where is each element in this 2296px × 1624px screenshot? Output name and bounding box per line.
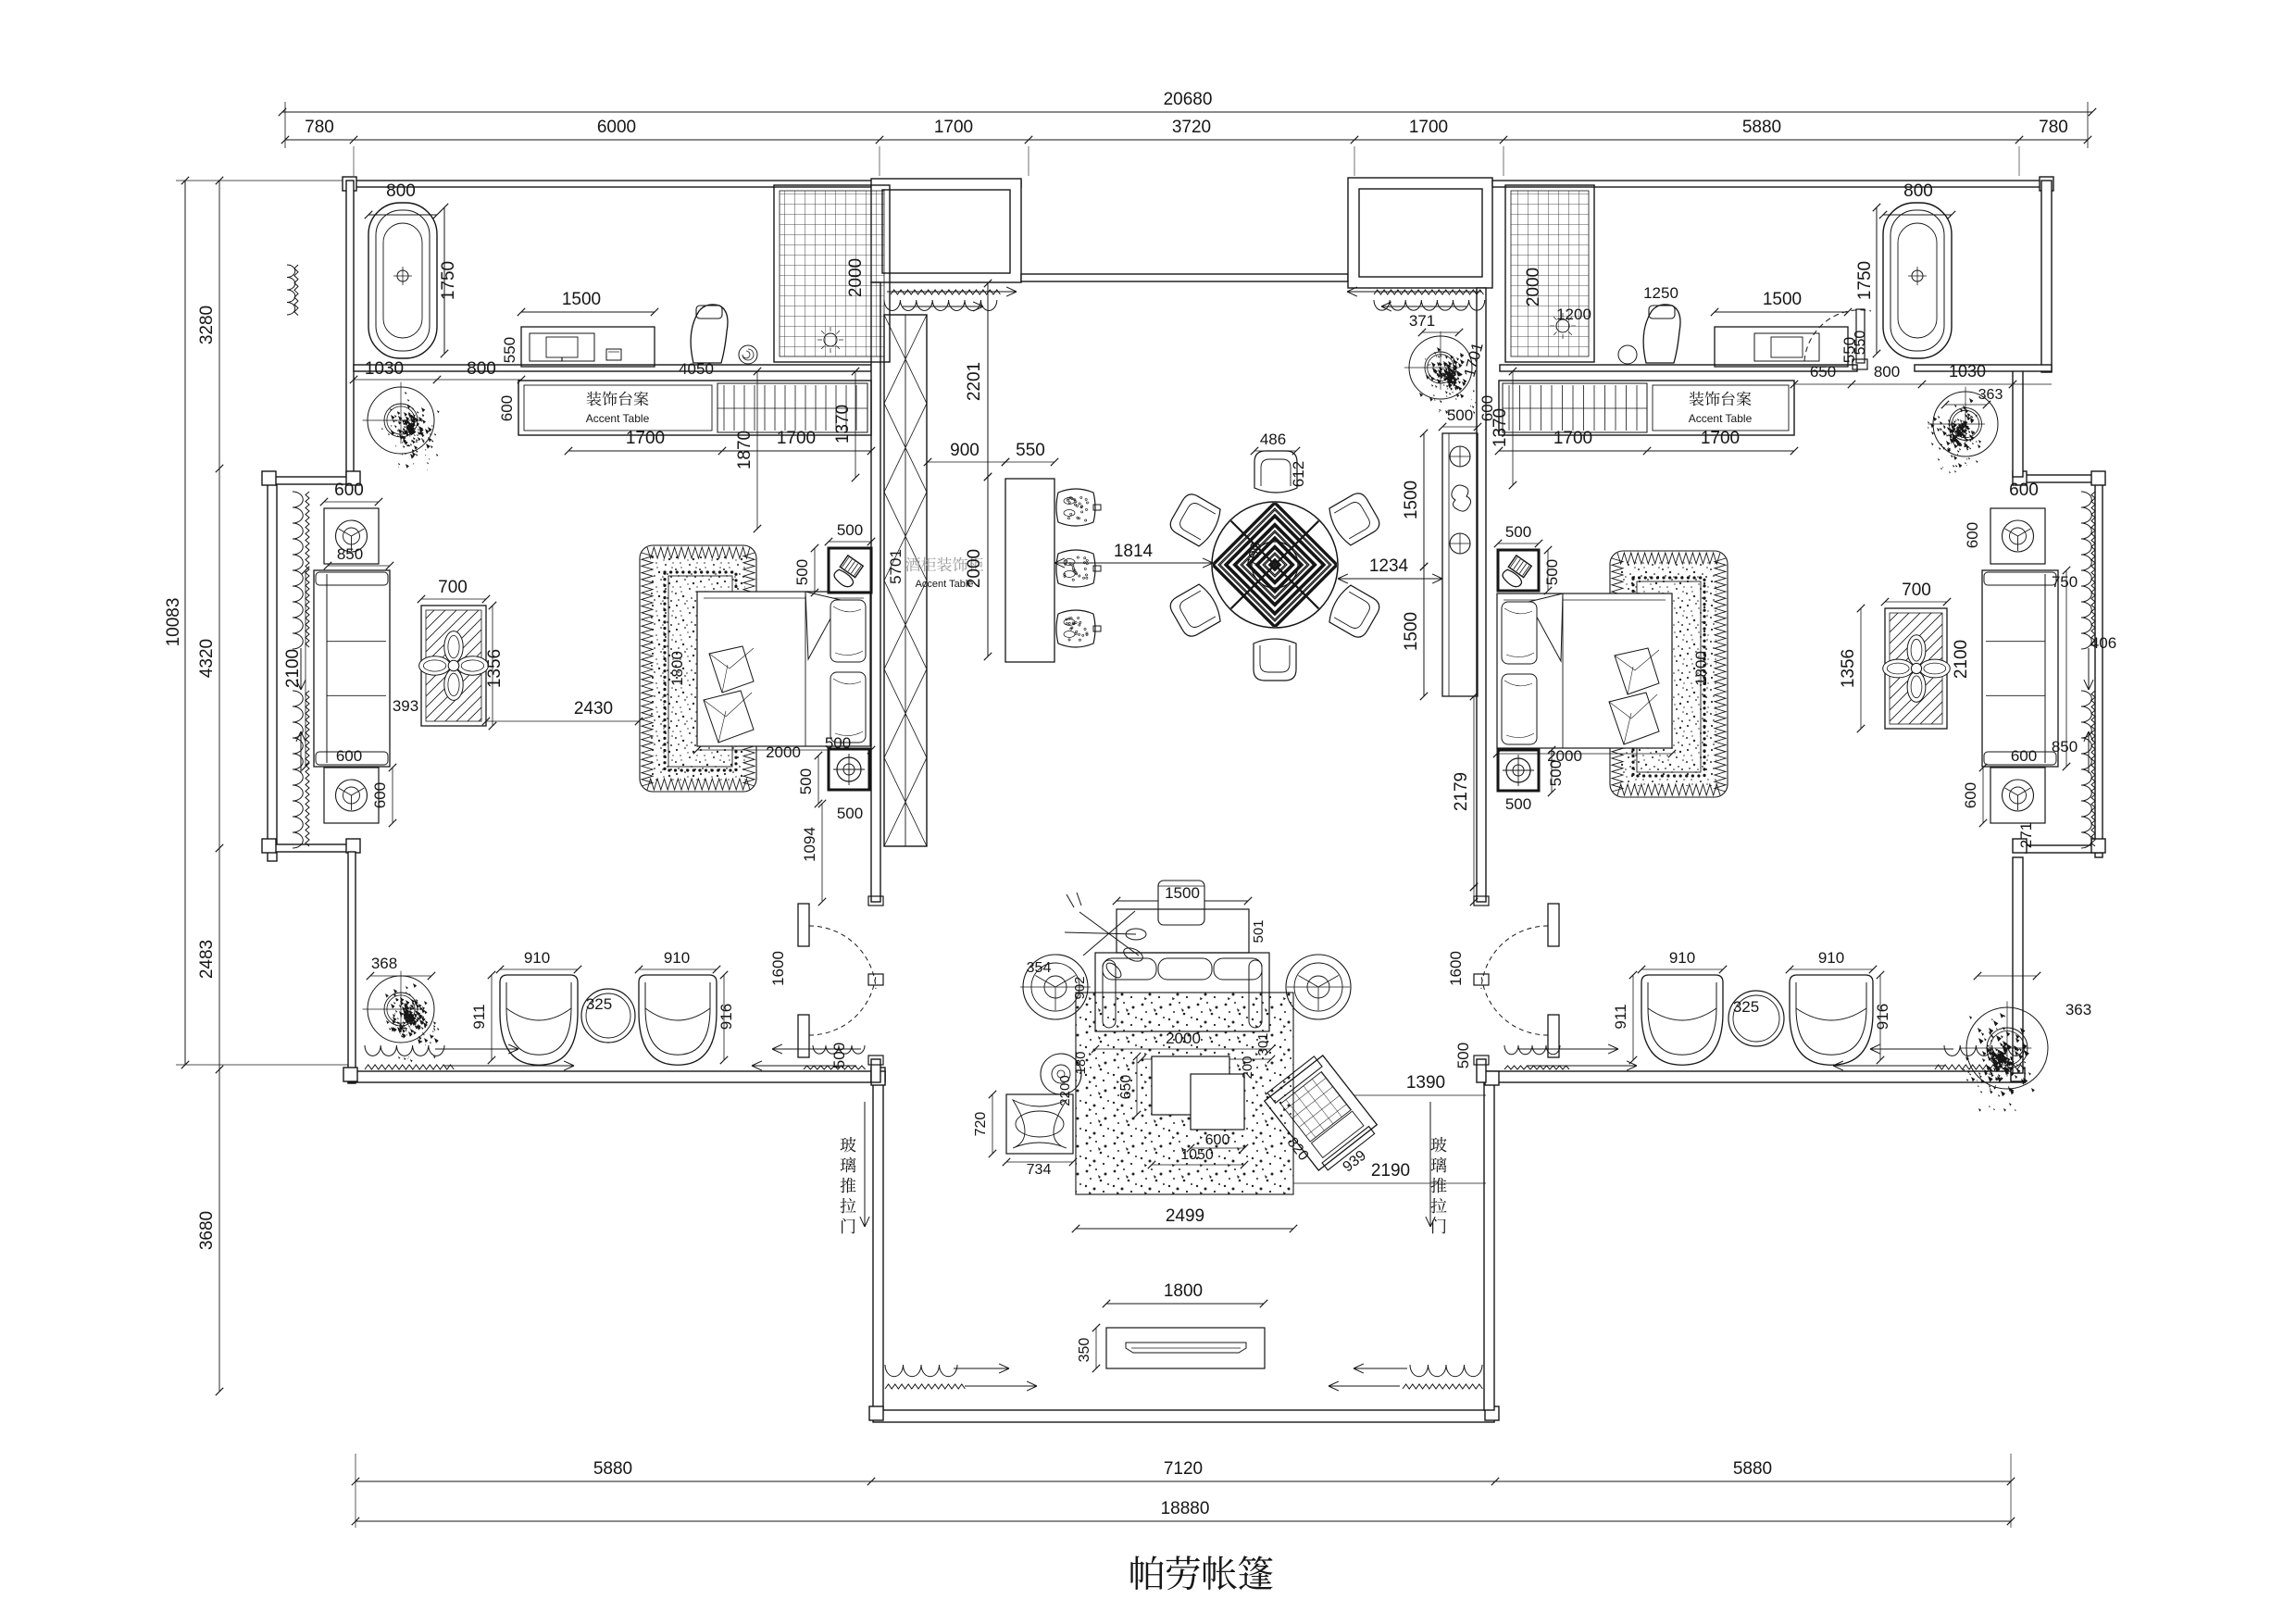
svg-text:5701: 5701 <box>887 549 905 584</box>
svg-text:600: 600 <box>2011 747 2037 765</box>
svg-text:500: 500 <box>1454 1043 1472 1068</box>
svg-text:500: 500 <box>837 521 863 539</box>
svg-text:780: 780 <box>2039 118 2068 137</box>
svg-text:2430: 2430 <box>574 699 613 718</box>
svg-text:1370: 1370 <box>1491 408 1510 447</box>
svg-text:734: 734 <box>1027 1162 1052 1178</box>
svg-text:2000: 2000 <box>846 258 866 297</box>
svg-text:2499: 2499 <box>1166 1206 1204 1226</box>
svg-text:500: 500 <box>825 734 851 752</box>
svg-text:1700: 1700 <box>1701 429 1740 448</box>
svg-text:650: 650 <box>1118 1075 1134 1100</box>
svg-text:1800: 1800 <box>668 651 686 686</box>
svg-text:1356: 1356 <box>1839 649 1858 688</box>
svg-text:800: 800 <box>1874 363 1900 381</box>
svg-text:750: 750 <box>2052 573 2078 591</box>
svg-text:550: 550 <box>1016 441 1045 460</box>
svg-text:2483: 2483 <box>197 940 217 979</box>
svg-text:1700: 1700 <box>934 118 973 137</box>
svg-text:1030: 1030 <box>1949 362 1986 381</box>
svg-text:600: 600 <box>1962 782 1979 808</box>
svg-text:500: 500 <box>1547 760 1565 786</box>
svg-text:3680: 3680 <box>197 1211 217 1250</box>
svg-text:1250: 1250 <box>1643 284 1678 302</box>
svg-text:500: 500 <box>1505 523 1531 541</box>
svg-text:500: 500 <box>1543 559 1561 585</box>
svg-text:600: 600 <box>336 747 362 765</box>
svg-text:2000: 2000 <box>1166 1030 1201 1047</box>
svg-text:2100: 2100 <box>283 649 303 688</box>
svg-text:600: 600 <box>334 481 364 500</box>
svg-text:7120: 7120 <box>1164 1459 1203 1479</box>
svg-text:1500: 1500 <box>1402 481 1421 519</box>
svg-text:1030: 1030 <box>365 359 404 379</box>
svg-text:700: 700 <box>438 578 468 597</box>
svg-text:354: 354 <box>1027 960 1052 976</box>
svg-text:500: 500 <box>1505 795 1531 813</box>
svg-text:1750: 1750 <box>439 261 458 300</box>
svg-text:1050: 1050 <box>1180 1147 1214 1163</box>
svg-text:500: 500 <box>1447 406 1473 424</box>
svg-text:20680: 20680 <box>1164 90 1213 109</box>
svg-text:1500: 1500 <box>1402 612 1421 651</box>
svg-text:18880: 18880 <box>1161 1499 1210 1518</box>
svg-text:916: 916 <box>1874 1004 1891 1030</box>
svg-text:1700: 1700 <box>777 429 816 448</box>
svg-text:501: 501 <box>1251 919 1267 943</box>
svg-text:2100: 2100 <box>1952 640 1971 679</box>
svg-text:10083: 10083 <box>164 598 183 647</box>
svg-text:600: 600 <box>498 395 516 421</box>
svg-text:900: 900 <box>950 441 980 460</box>
svg-text:780: 780 <box>305 118 334 137</box>
svg-text:1390: 1390 <box>1406 1073 1445 1093</box>
svg-text:5880: 5880 <box>1733 1459 1772 1479</box>
svg-text:600: 600 <box>1964 522 1981 548</box>
svg-text:600: 600 <box>2009 481 2039 500</box>
svg-text:500: 500 <box>793 559 811 585</box>
svg-text:1234: 1234 <box>1369 556 1409 576</box>
svg-text:600: 600 <box>371 782 389 808</box>
svg-text:650: 650 <box>1810 363 1836 381</box>
svg-text:6000: 6000 <box>597 118 636 137</box>
svg-text:1500: 1500 <box>1165 884 1200 902</box>
svg-text:800: 800 <box>467 359 496 379</box>
svg-text:700: 700 <box>1902 581 1931 600</box>
svg-text:2179: 2179 <box>1452 772 1471 811</box>
svg-text:1700: 1700 <box>1409 118 1448 137</box>
svg-text:910: 910 <box>1669 949 1695 967</box>
svg-text:5880: 5880 <box>1742 118 1781 137</box>
svg-text:1500: 1500 <box>562 290 601 309</box>
svg-text:910: 910 <box>664 949 690 967</box>
svg-text:800: 800 <box>1903 181 1933 201</box>
svg-text:2201: 2201 <box>965 362 984 401</box>
svg-text:800: 800 <box>386 181 416 201</box>
svg-text:486: 486 <box>1260 431 1286 448</box>
svg-text:368: 368 <box>371 955 397 972</box>
svg-text:1870: 1870 <box>735 431 755 469</box>
svg-text:850: 850 <box>337 545 363 563</box>
svg-text:3280: 3280 <box>197 306 217 344</box>
svg-text:2000: 2000 <box>1524 268 1543 306</box>
svg-text:600: 600 <box>1205 1132 1230 1148</box>
svg-text:301: 301 <box>1255 1032 1271 1056</box>
svg-text:200: 200 <box>1240 1056 1255 1079</box>
svg-text:902: 902 <box>1072 976 1088 999</box>
svg-text:1800: 1800 <box>1692 651 1710 686</box>
svg-text:1814: 1814 <box>1114 542 1154 561</box>
svg-text:4050: 4050 <box>679 360 714 378</box>
svg-text:4320: 4320 <box>197 639 217 678</box>
svg-text:550: 550 <box>1853 331 1868 356</box>
svg-text:3720: 3720 <box>1172 118 1211 137</box>
svg-text:550: 550 <box>501 337 518 363</box>
svg-text:1370: 1370 <box>833 405 853 443</box>
svg-text:911: 911 <box>1612 1004 1629 1029</box>
svg-text:1600: 1600 <box>1447 951 1465 986</box>
svg-text:911: 911 <box>470 1004 488 1029</box>
svg-text:720: 720 <box>973 1112 989 1137</box>
svg-text:1356: 1356 <box>485 649 505 688</box>
svg-text:612: 612 <box>1290 461 1307 487</box>
svg-text:363: 363 <box>1978 387 2003 403</box>
svg-text:406: 406 <box>2090 634 2116 652</box>
svg-text:1700: 1700 <box>1554 429 1592 448</box>
svg-text:910: 910 <box>524 949 550 967</box>
svg-text:393: 393 <box>393 697 418 715</box>
svg-text:1800: 1800 <box>1164 1281 1203 1301</box>
svg-text:910: 910 <box>1818 949 1844 967</box>
svg-text:325: 325 <box>586 995 612 1013</box>
svg-text:363: 363 <box>2065 1001 2091 1018</box>
svg-text:1600: 1600 <box>769 951 787 986</box>
svg-text:1500: 1500 <box>1763 290 1802 309</box>
svg-text:1750: 1750 <box>1855 261 1875 300</box>
svg-text:350: 350 <box>1077 1338 1092 1363</box>
svg-text:850: 850 <box>2052 738 2078 756</box>
svg-text:Accent Table: Accent Table <box>1689 412 1753 425</box>
svg-text:371: 371 <box>1409 312 1435 330</box>
svg-text:2190: 2190 <box>1371 1161 1410 1181</box>
svg-text:1094: 1094 <box>801 827 818 862</box>
svg-text:Accent Table: Accent Table <box>586 412 650 425</box>
svg-text:1200: 1200 <box>1556 306 1591 323</box>
svg-text:1700: 1700 <box>626 429 665 448</box>
svg-text:325: 325 <box>1733 998 1759 1016</box>
svg-text:500: 500 <box>797 768 815 794</box>
svg-text:500: 500 <box>837 805 863 822</box>
svg-text:916: 916 <box>717 1004 735 1030</box>
svg-text:5880: 5880 <box>593 1459 632 1479</box>
svg-text:2000: 2000 <box>965 549 984 588</box>
svg-text:271: 271 <box>2017 822 2035 848</box>
